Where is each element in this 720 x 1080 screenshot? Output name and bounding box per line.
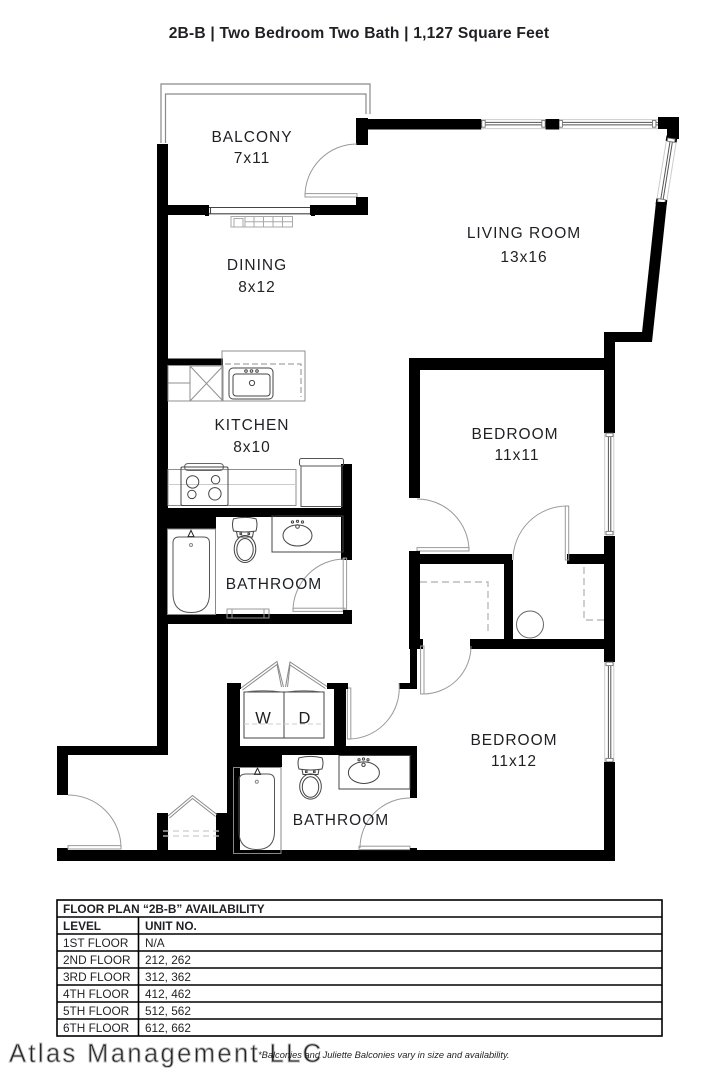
svg-text:BATHROOM: BATHROOM [293, 812, 389, 829]
svg-text:11x12: 11x12 [491, 753, 537, 770]
svg-text:11x11: 11x11 [495, 447, 540, 464]
svg-text:UNIT NO.: UNIT NO. [145, 919, 197, 933]
svg-text:412, 462: 412, 462 [145, 987, 191, 1001]
svg-text:2B-B | Two Bedroom Two Bath |: 2B-B | Two Bedroom Two Bath | 1,127 Squa… [169, 25, 550, 42]
svg-text:312, 362: 312, 362 [145, 970, 191, 984]
svg-text:13x16: 13x16 [500, 249, 547, 266]
svg-text:BEDROOM: BEDROOM [471, 426, 558, 443]
svg-text:DINING: DINING [227, 257, 287, 274]
svg-text:7x11: 7x11 [234, 150, 270, 167]
svg-text:3RD FLOOR: 3RD FLOOR [63, 970, 131, 984]
svg-text:FLOOR PLAN “2B-B” AVAILABILITY: FLOOR PLAN “2B-B” AVAILABILITY [63, 902, 265, 916]
svg-text:512, 562: 512, 562 [145, 1004, 191, 1018]
svg-text:8x10: 8x10 [233, 439, 271, 456]
svg-text:8x12: 8x12 [238, 279, 276, 296]
svg-text:*Balconies and Juliette Balcon: *Balconies and Juliette Balconies vary i… [258, 1050, 510, 1060]
svg-text:BATHROOM: BATHROOM [226, 576, 322, 593]
svg-text:4TH FLOOR: 4TH FLOOR [63, 987, 129, 1001]
svg-text:KITCHEN: KITCHEN [214, 417, 289, 434]
svg-text:D: D [299, 710, 311, 728]
svg-text:BALCONY: BALCONY [211, 129, 292, 146]
svg-text:BEDROOM: BEDROOM [470, 732, 557, 749]
svg-text:212, 262: 212, 262 [145, 953, 191, 967]
svg-text:6TH FLOOR: 6TH FLOOR [63, 1021, 129, 1035]
svg-text:LIVING ROOM: LIVING ROOM [467, 225, 581, 242]
svg-text:2ND FLOOR: 2ND FLOOR [63, 953, 131, 967]
svg-text:5TH FLOOR: 5TH FLOOR [63, 1004, 129, 1018]
svg-text:N/A: N/A [145, 936, 165, 950]
svg-text:612, 662: 612, 662 [145, 1021, 191, 1035]
svg-text:1ST FLOOR: 1ST FLOOR [63, 936, 128, 950]
svg-text:LEVEL: LEVEL [63, 919, 101, 933]
svg-text:W: W [255, 710, 271, 728]
